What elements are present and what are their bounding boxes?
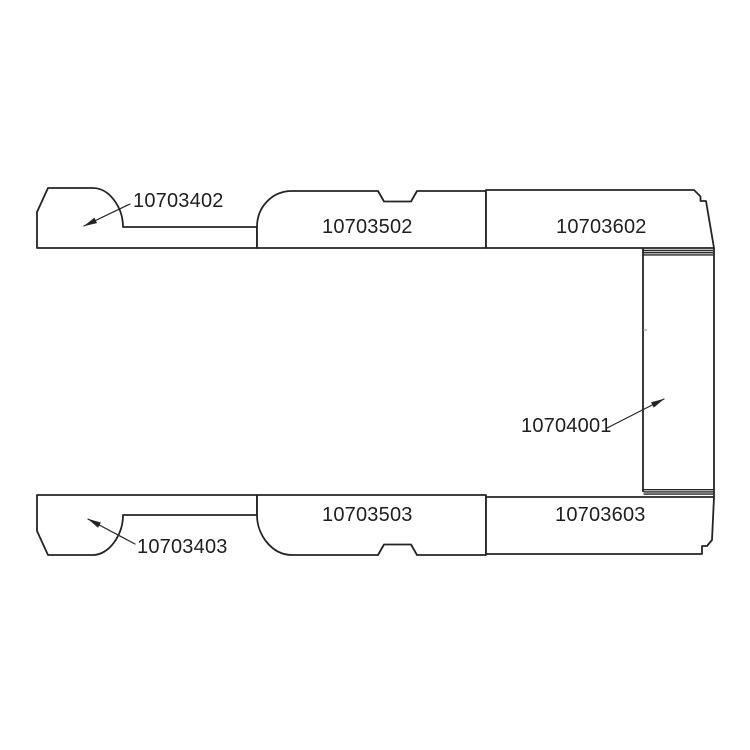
part-label-10704001: 10704001 xyxy=(521,415,612,437)
part-label-10703603: 10703603 xyxy=(555,504,646,526)
hatch-band-top xyxy=(644,251,714,255)
parts-diagram: 10703402 10703502 10703602 10704001 1070… xyxy=(0,0,750,750)
part-label-10703403: 10703403 xyxy=(137,536,228,558)
leader-lines xyxy=(84,204,664,544)
part-label-10703503: 10703503 xyxy=(322,504,413,526)
parts-diagram-svg: 10703402 10703502 10703602 10704001 1070… xyxy=(0,0,750,750)
hatch-band-bottom xyxy=(644,490,714,494)
part-label-10703402: 10703402 xyxy=(133,190,224,212)
part-label-10703602: 10703602 xyxy=(556,216,647,238)
right-panel-10704001 xyxy=(643,248,714,497)
leader-arrow-10704001 xyxy=(607,399,664,428)
part-label-10703502: 10703502 xyxy=(322,216,413,238)
